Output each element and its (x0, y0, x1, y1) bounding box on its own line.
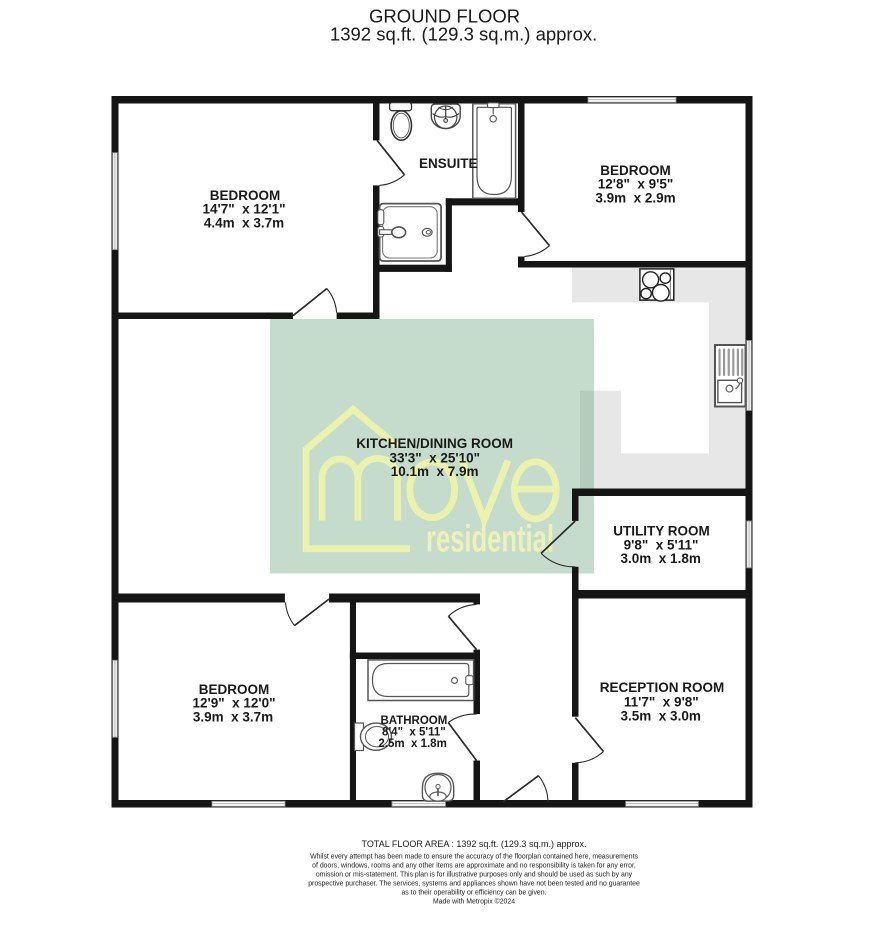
svg-text:ENSUITE: ENSUITE (419, 156, 478, 171)
svg-text:8'4" x 5'11": 8'4" x 5'11" (382, 727, 446, 739)
svg-text:KITCHEN/DINING ROOM: KITCHEN/DINING ROOM (356, 436, 513, 451)
svg-text:2.5m x 1.8m: 2.5m x 1.8m (378, 738, 446, 750)
svg-text:of doors, windows, rooms and a: of doors, windows, rooms and any other i… (312, 863, 636, 870)
svg-text:residential: residential (426, 519, 554, 561)
svg-text:3.9m x 2.9m: 3.9m x 2.9m (595, 190, 675, 205)
svg-text:omission or mis-statement. Thi: omission or mis-statement. This plan is … (316, 872, 633, 879)
svg-text:11'7" x 9'8": 11'7" x 9'8" (624, 694, 699, 709)
svg-text:3.0m x 1.8m: 3.0m x 1.8m (621, 551, 701, 566)
svg-text:RECEPTION ROOM: RECEPTION ROOM (600, 680, 725, 695)
svg-text:Whilst every attempt has been: Whilst every attempt has been made to en… (310, 854, 638, 861)
svg-text:as to their operability or eff: as to their operability or efficiency ca… (401, 890, 546, 897)
svg-text:UTILITY ROOM: UTILITY ROOM (613, 524, 710, 539)
svg-text:1392 sq.ft. (129.3 sq.m.) appr: 1392 sq.ft. (129.3 sq.m.) approx. (330, 23, 597, 44)
svg-text:TOTAL FLOOR AREA : 1392 sq.ft.: TOTAL FLOOR AREA : 1392 sq.ft. (129.3 sq… (362, 839, 587, 849)
svg-text:Made with Metropix ©2024: Made with Metropix ©2024 (433, 898, 515, 906)
svg-text:10.1m x 7.9m: 10.1m x 7.9m (391, 464, 479, 479)
svg-text:3.9m x 3.7m: 3.9m x 3.7m (193, 709, 273, 724)
svg-text:prospective purchaser. The ser: prospective purchaser. The services, sys… (308, 881, 640, 888)
svg-text:4.4m x 3.7m: 4.4m x 3.7m (204, 215, 284, 230)
svg-text:BATHROOM: BATHROOM (380, 715, 447, 727)
svg-text:3.5m x 3.0m: 3.5m x 3.0m (621, 709, 701, 724)
